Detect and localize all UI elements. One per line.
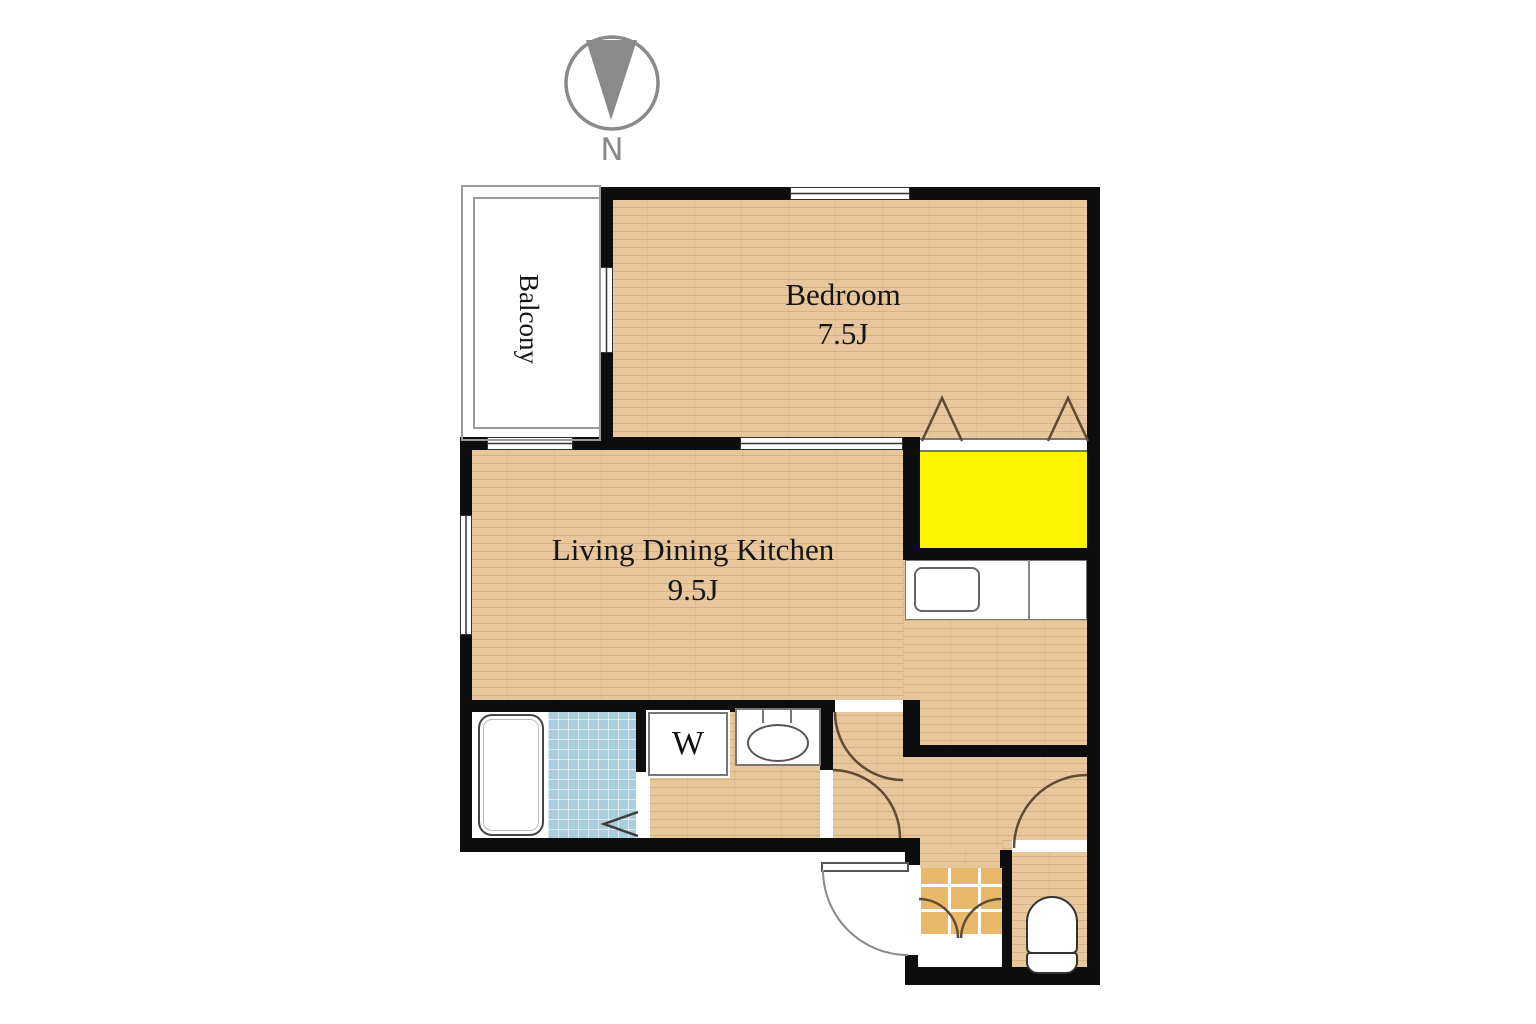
closet-front-door	[918, 438, 1087, 452]
bedroom-name: Bedroom	[693, 275, 993, 314]
door-opening	[1012, 840, 1087, 852]
wall	[1087, 187, 1100, 985]
wall	[820, 700, 833, 770]
ldk-label: Living Dining Kitchen 9.5J	[478, 530, 908, 610]
bedroom-size: 7.5J	[693, 314, 993, 353]
bathtub	[478, 714, 544, 836]
wall	[460, 838, 920, 852]
ldk-size: 9.5J	[478, 570, 908, 610]
toilet-seat	[1026, 952, 1078, 974]
entrance-step-floor	[918, 850, 1002, 870]
bathroom-tiled-area	[548, 705, 640, 840]
washbasin-divider	[790, 708, 792, 723]
washbasin-divider	[762, 708, 764, 723]
window	[600, 267, 613, 353]
washing-machine-label: W	[672, 725, 704, 763]
wall	[903, 548, 1100, 560]
closet	[918, 450, 1087, 550]
counter-divider	[1028, 560, 1030, 620]
bedroom-label: Bedroom 7.5J	[693, 275, 993, 353]
kitchen-sink	[914, 567, 980, 612]
balcony-label: Balcony	[512, 234, 544, 404]
compass-north-label: N	[587, 132, 637, 168]
washbasin-sink	[747, 724, 809, 762]
door-opening	[835, 700, 903, 712]
hall-floor-right	[903, 745, 1100, 852]
wall	[918, 745, 1100, 757]
entrance-porch	[918, 937, 1002, 967]
sliding-door	[740, 437, 903, 450]
wall	[460, 437, 472, 852]
window	[790, 187, 910, 200]
floor-plan: W N Balcony Bedroom 7.5J Living Dining K…	[0, 0, 1536, 1024]
wall	[600, 437, 740, 450]
door-opening	[820, 770, 833, 838]
entrance-door-leaf	[821, 862, 909, 872]
compass-needle-icon	[586, 40, 637, 120]
entrance-tiled-floor	[918, 868, 1002, 937]
toilet	[1026, 896, 1078, 954]
ldk-name: Living Dining Kitchen	[478, 530, 908, 570]
washing-machine: W	[648, 712, 728, 776]
entrance-door-swing-arc	[823, 870, 908, 955]
window	[460, 515, 472, 635]
compass-icon	[566, 37, 658, 129]
door-opening	[636, 772, 650, 838]
